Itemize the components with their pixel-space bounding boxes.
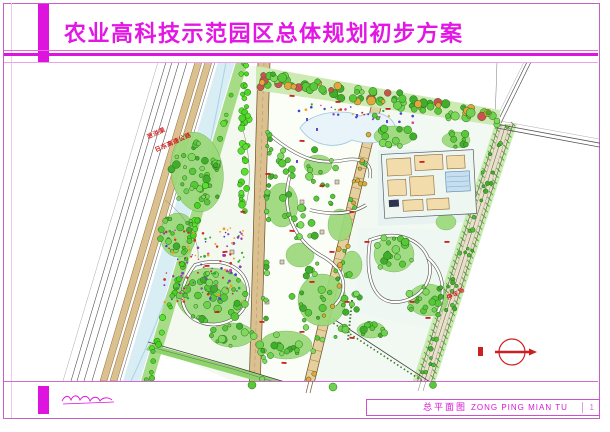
plan-clip-area: 泄洪渠 日东高速公路 停车场 — [63, 61, 610, 394]
overflow-trees — [248, 381, 437, 393]
north-arrow-icon — [478, 339, 537, 365]
sheet-number: 1 — [590, 401, 594, 415]
dark-building — [389, 200, 399, 208]
footer-accent-bar — [38, 386, 49, 414]
sheet-title-box: 总平面图 ZONG PING MIAN TU 1 — [366, 399, 600, 416]
greenhouse-block — [381, 150, 476, 219]
drawing-sheet: 农业高科技示范园区总体规划初步方案 — [0, 0, 610, 432]
site-plan-map: 泄洪渠 日东高速公路 停车场 — [0, 0, 610, 432]
sheet-title-pinyin: ZONG PING MIAN TU — [471, 401, 568, 415]
legend-red-block — [478, 347, 483, 356]
sheet-title-cn: 总平面图 — [423, 400, 467, 414]
signature-scribble — [58, 392, 120, 408]
sheet-box-divider — [582, 402, 583, 413]
